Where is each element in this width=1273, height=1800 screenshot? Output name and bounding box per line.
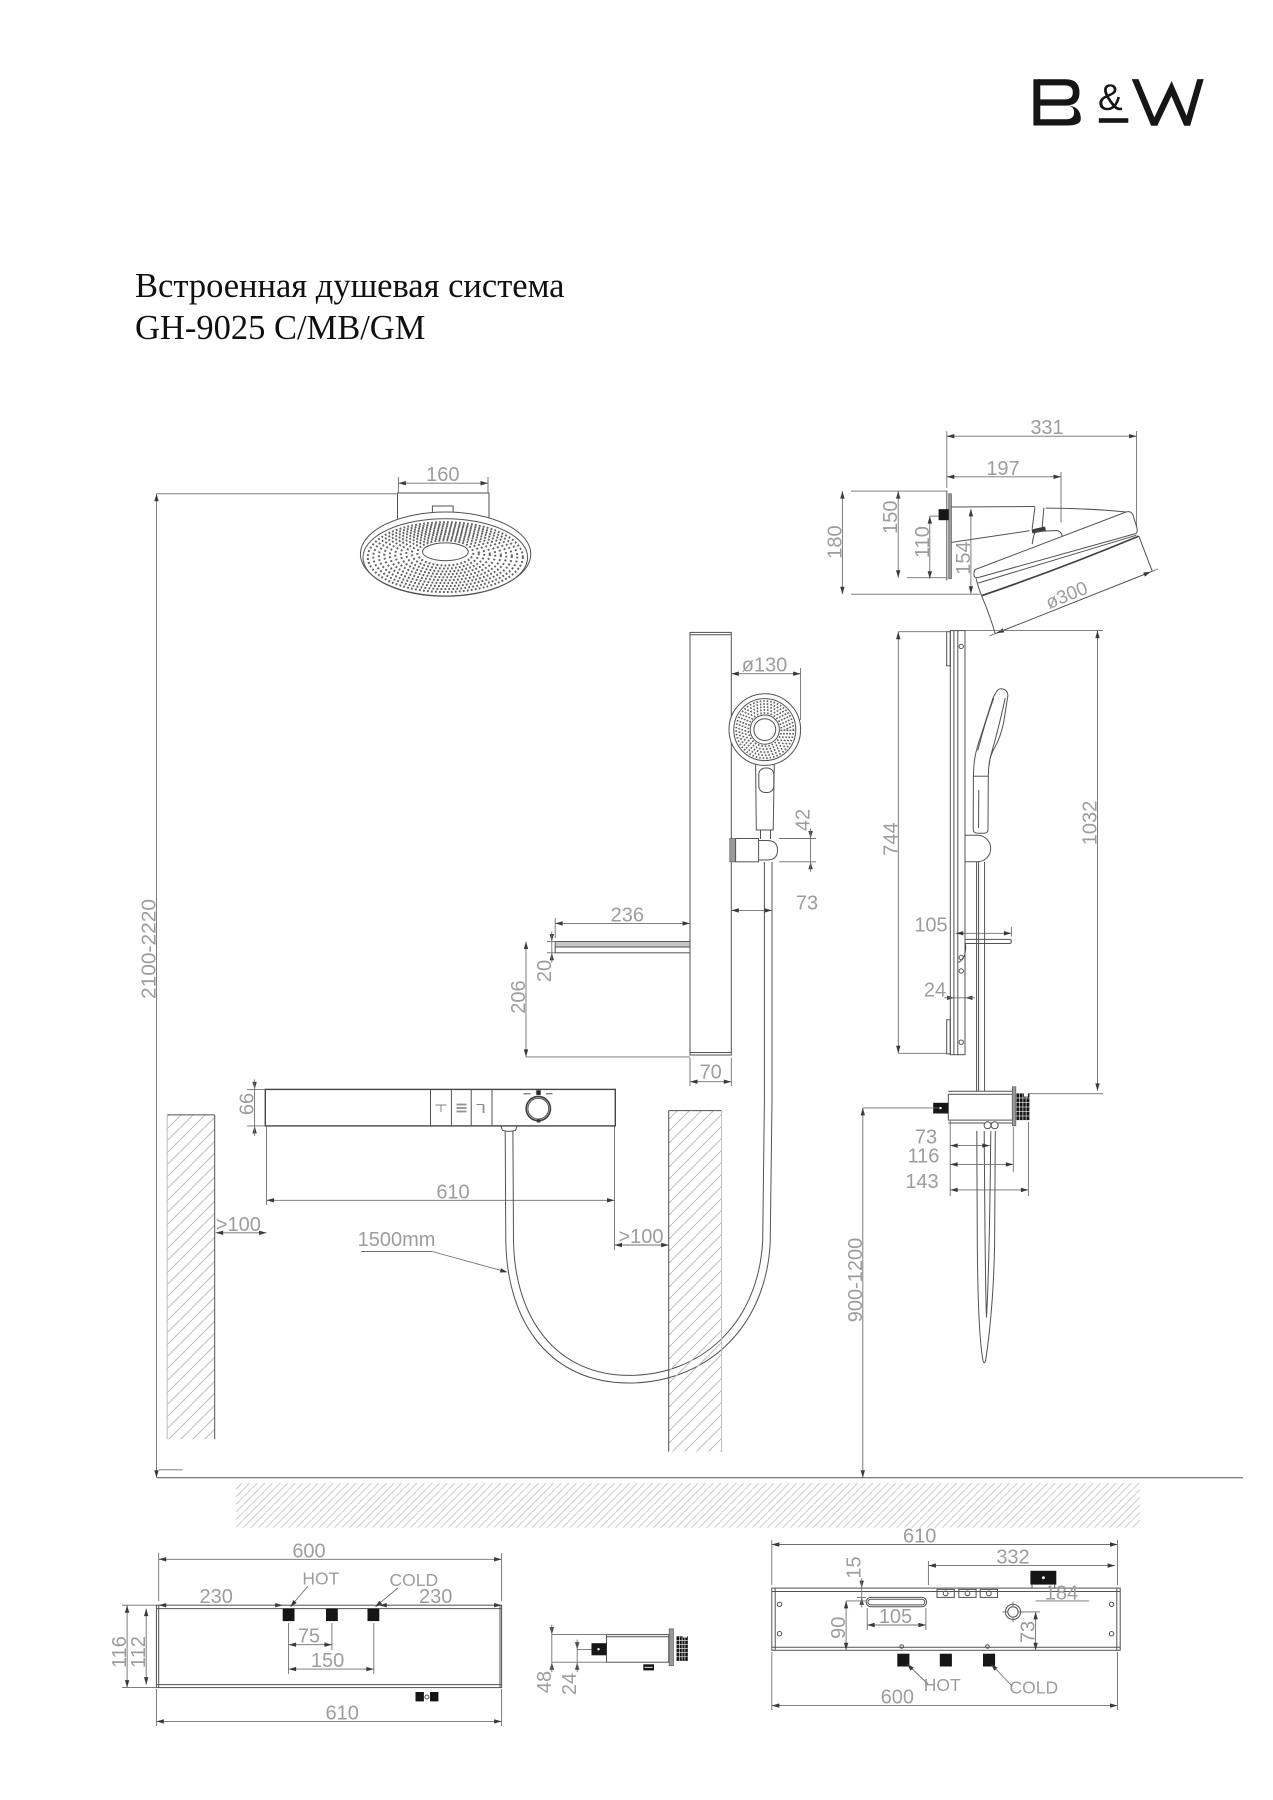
svg-text:HOT: HOT — [924, 1675, 961, 1695]
svg-text:70: 70 — [700, 1062, 722, 1084]
svg-text:230: 230 — [419, 1586, 452, 1608]
svg-text:73: 73 — [1018, 1621, 1040, 1643]
svg-text:206: 206 — [508, 980, 530, 1013]
svg-text:230: 230 — [200, 1586, 233, 1608]
svg-text:197: 197 — [986, 458, 1019, 480]
svg-text:116: 116 — [908, 1145, 940, 1167]
svg-text:112: 112 — [128, 1636, 150, 1668]
svg-text:24: 24 — [559, 1673, 581, 1695]
svg-text:75: 75 — [298, 1626, 320, 1648]
svg-text:>100: >100 — [216, 1214, 261, 1236]
svg-text:1500mm: 1500mm — [358, 1229, 436, 1251]
svg-text:90: 90 — [828, 1617, 850, 1639]
svg-text:610: 610 — [436, 1181, 469, 1203]
svg-text:332: 332 — [996, 1547, 1029, 1569]
svg-text:66: 66 — [237, 1093, 259, 1115]
svg-text:160: 160 — [426, 464, 459, 486]
svg-text:150: 150 — [311, 1650, 344, 1672]
svg-text:>100: >100 — [618, 1226, 663, 1248]
svg-text:15: 15 — [844, 1556, 866, 1578]
svg-text:73: 73 — [796, 893, 818, 915]
svg-text:Встроенная душевая система: Встроенная душевая система — [135, 267, 565, 305]
svg-text:154: 154 — [953, 541, 975, 574]
svg-text:ø130: ø130 — [742, 655, 788, 677]
svg-text:600: 600 — [292, 1540, 325, 1562]
svg-text:331: 331 — [1030, 417, 1063, 439]
svg-text:744: 744 — [880, 822, 902, 855]
svg-text:20: 20 — [534, 960, 556, 982]
svg-text:610: 610 — [903, 1526, 936, 1548]
svg-text:2100-2220: 2100-2220 — [139, 899, 161, 999]
svg-text:236: 236 — [611, 904, 644, 926]
svg-text:900-1200: 900-1200 — [845, 1238, 867, 1323]
svg-text:1032: 1032 — [1080, 801, 1102, 846]
svg-text:COLD: COLD — [1009, 1678, 1058, 1698]
svg-text:105: 105 — [879, 1606, 912, 1628]
svg-text:180: 180 — [824, 525, 846, 558]
svg-text:105: 105 — [914, 914, 947, 936]
svg-text:150: 150 — [880, 501, 902, 534]
svg-text:600: 600 — [881, 1687, 914, 1709]
svg-text:143: 143 — [905, 1171, 938, 1193]
svg-text:24: 24 — [924, 979, 946, 1001]
svg-text:42: 42 — [793, 809, 815, 831]
svg-text:48: 48 — [534, 1671, 556, 1693]
svg-text:HOT: HOT — [302, 1569, 339, 1589]
svg-text:&: & — [1098, 77, 1123, 118]
svg-text:610: 610 — [326, 1702, 359, 1724]
svg-text:GH-9025 C/MB/GM: GH-9025 C/MB/GM — [135, 309, 425, 347]
svg-text:110: 110 — [912, 526, 934, 558]
